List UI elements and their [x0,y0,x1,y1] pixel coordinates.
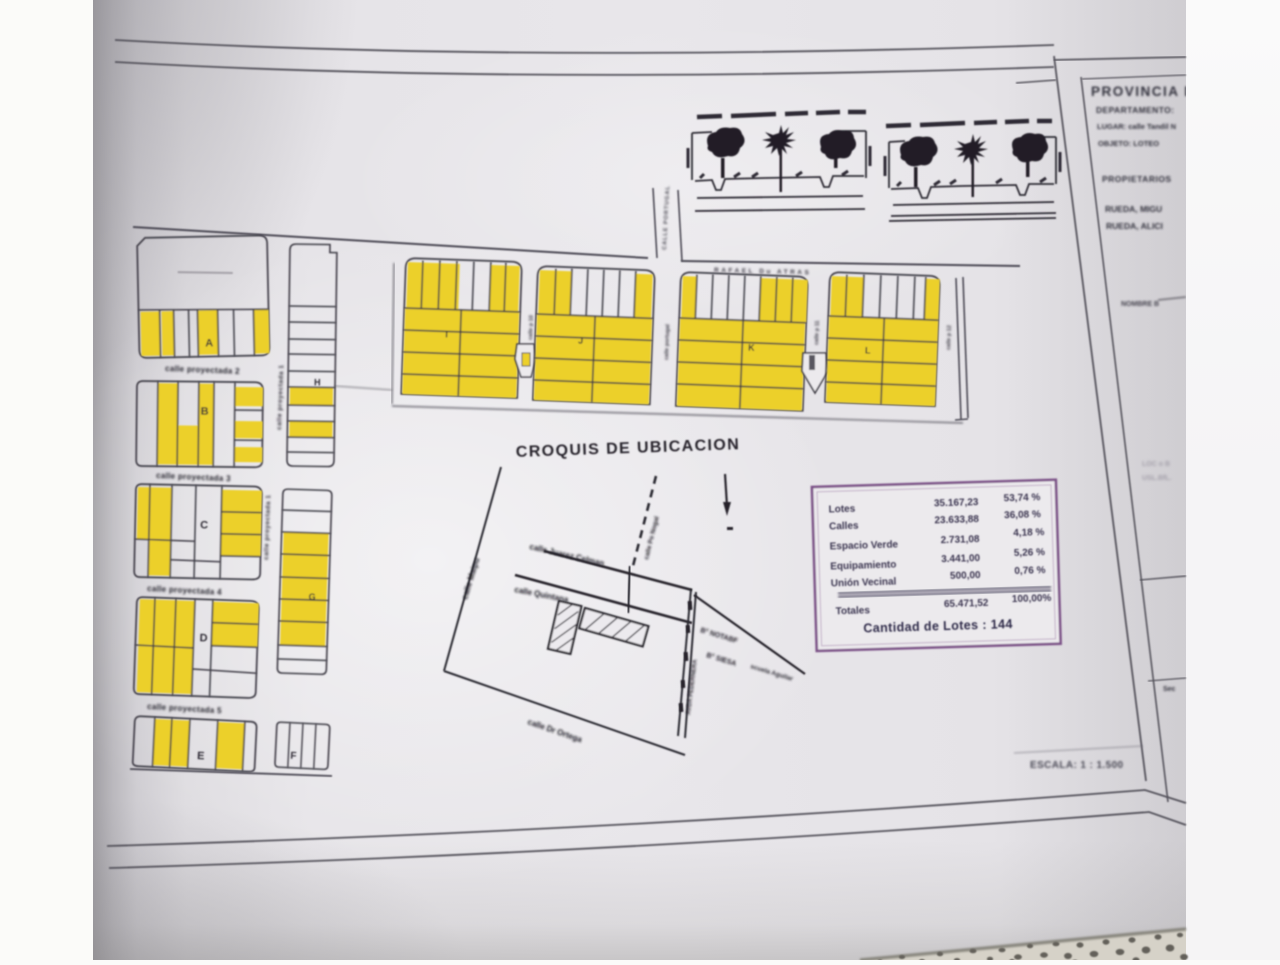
svg-text:500,00: 500,00 [950,570,981,582]
svg-text:3.441,00: 3.441,00 [941,553,981,565]
svg-text:23.633,88: 23.633,88 [934,514,979,526]
svg-text:PROVINCIA D: PROVINCIA D [1091,84,1196,99]
svg-text:53,74 %: 53,74 % [1003,492,1040,504]
svg-text:USL.BfL.: USL.BfL. [1142,475,1172,482]
svg-text:G: G [308,592,315,602]
svg-text:calle p 12: calle p 12 [946,325,953,350]
svg-text:F: F [290,751,297,762]
svg-text:J: J [578,336,583,346]
svg-text:36,08 %: 36,08 % [1004,509,1041,521]
svg-text:4,18 %: 4,18 % [1013,527,1045,539]
svg-text:Espacio Verde: Espacio Verde [830,539,899,552]
svg-text:D: D [199,632,207,644]
svg-text:calle p 11: calle p 11 [814,320,821,345]
svg-text:I: I [445,329,448,339]
svg-text:LUGAR: calle Tandil N: LUGAR: calle Tandil N [1097,122,1176,131]
svg-text:L: L [865,345,871,355]
svg-text:H: H [314,377,321,387]
svg-text:2.731,08: 2.731,08 [940,534,980,546]
svg-text:calle p 10: calle p 10 [528,315,535,340]
svg-text:5,26 %: 5,26 % [1014,547,1046,559]
svg-text:B: B [201,406,209,418]
svg-text:RUEDA, ALICI: RUEDA, ALICI [1106,221,1163,231]
svg-text:C: C [200,519,208,531]
svg-text:DEPARTAMENTO:: DEPARTAMENTO: [1096,105,1174,115]
svg-text:Equipamiento: Equipamiento [830,560,896,573]
svg-text:K: K [748,343,755,353]
svg-text:RUEDA, MIGU: RUEDA, MIGU [1105,204,1162,214]
svg-text:E: E [197,750,205,762]
svg-text:ESCALA: 1 : 1.500: ESCALA: 1 : 1.500 [1030,760,1124,771]
svg-text:calle portugal: calle portugal [664,324,671,360]
svg-text:NOMBRE B: NOMBRE B [1121,301,1159,308]
svg-text:65.471,52: 65.471,52 [944,598,989,610]
svg-text:Totales: Totales [835,605,870,617]
svg-text:35.167,23: 35.167,23 [934,497,979,509]
svg-text:Sec: Sec [1163,686,1176,693]
svg-text:0,76 %: 0,76 % [1014,565,1046,577]
svg-text:A: A [205,337,213,349]
svg-text:PROPIETARIOS: PROPIETARIOS [1102,174,1172,184]
svg-text:Calles: Calles [829,521,859,533]
svg-text:Unión Vecinal: Unión Vecinal [831,577,897,590]
svg-text:100,00%: 100,00% [1012,593,1052,605]
svg-text:OBJETO: LOTEO: OBJETO: LOTEO [1098,139,1159,148]
svg-text:LOC o B: LOC o B [1142,461,1170,468]
svg-text:Lotes: Lotes [828,504,855,516]
